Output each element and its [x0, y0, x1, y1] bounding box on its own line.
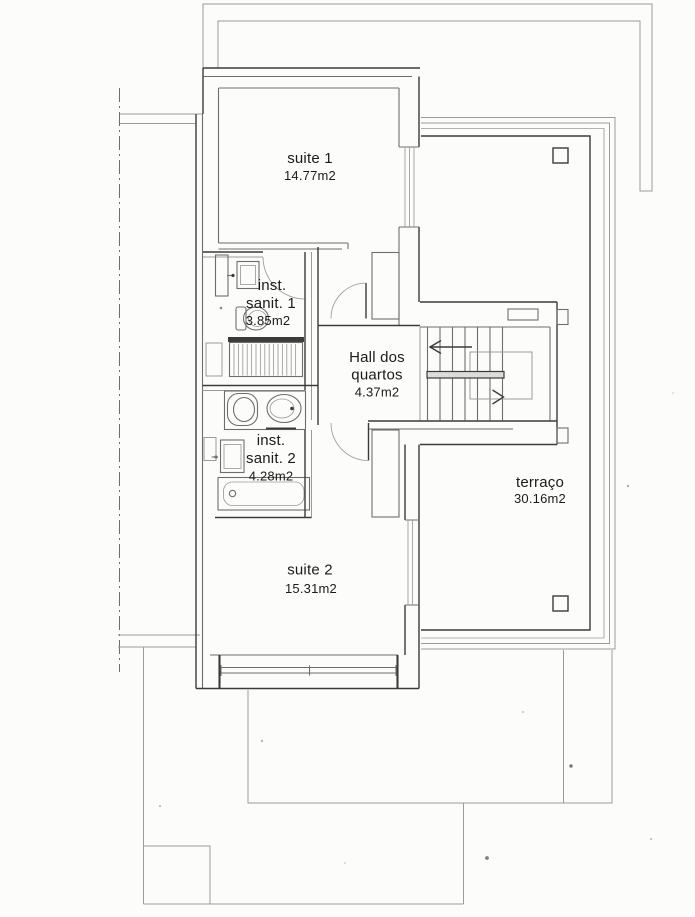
stairs: [427, 328, 532, 421]
hall-label-2: quartos: [351, 367, 402, 384]
duct-rect: [216, 255, 229, 296]
bidet-icon: [267, 395, 301, 423]
stair-arrow-down: [493, 390, 504, 404]
corridor: [331, 243, 399, 326]
stair-wall-window: [508, 309, 538, 320]
suite1-east-window: [399, 147, 419, 227]
wall-tab-bottom: [557, 428, 568, 443]
side-yard: [118, 88, 464, 904]
suite1-door-arc: [331, 283, 366, 319]
wardrobe-corridor: [372, 253, 399, 320]
suite-1-room: suite 1 14.77m2: [219, 88, 420, 249]
yard-corner-square: [144, 846, 211, 904]
suite2-east-window: [405, 445, 419, 656]
wall-fill-bar: [228, 337, 304, 342]
toilet2-icon: [228, 394, 258, 426]
terrace: terraço 30.16m2: [421, 118, 615, 650]
washbasin-icon: [227, 262, 259, 289]
suite2-label: suite 2: [287, 562, 333, 579]
terrace-label: terraço: [516, 474, 564, 491]
shower-icon: [230, 343, 303, 377]
roof-outline: [203, 4, 652, 191]
terrace-area: 30.16m2: [514, 491, 566, 506]
hall-room: Hall dos quartos 4.37m2: [318, 326, 420, 422]
wall-tab-top: [557, 310, 568, 325]
suite2-south-window: [221, 665, 396, 676]
sanit1-label-1: inst.: [258, 277, 287, 294]
suite2-area: 15.31m2: [285, 581, 337, 596]
stair-arrow-up: [430, 341, 472, 354]
hall-area: 4.37m2: [355, 385, 400, 400]
suite1-area: 14.77m2: [284, 168, 336, 183]
sanit1-label-2: sanit. 1: [246, 295, 296, 312]
floor-plan-scan: terraço 30.16m2 suite: [0, 0, 695, 917]
handrail: [427, 372, 504, 379]
sanit2-label-1: inst.: [257, 432, 286, 449]
terrace-pillar-top: [553, 148, 568, 163]
suite2-door-arc: [331, 423, 369, 461]
wardrobe-suite2: [372, 430, 399, 517]
sanit2-area: 4.28m2: [249, 469, 294, 484]
wall-niche: [206, 343, 222, 376]
hall-label-1: Hall dos: [349, 349, 405, 366]
suite1-label: suite 1: [287, 150, 333, 167]
sanit1-area: 3.85m2: [246, 313, 291, 328]
floor-plan-drawing: terraço 30.16m2 suite: [0, 0, 695, 917]
terrace-railing: [421, 136, 590, 630]
sanit2-label-2: sanit. 2: [246, 450, 296, 467]
sanit-1-room: inst. sanit. 1 3.85m2: [203, 247, 319, 425]
terrace-pillar-bottom: [553, 596, 568, 611]
sanit-2-room: inst. sanit. 2 4.28m2: [204, 391, 312, 518]
